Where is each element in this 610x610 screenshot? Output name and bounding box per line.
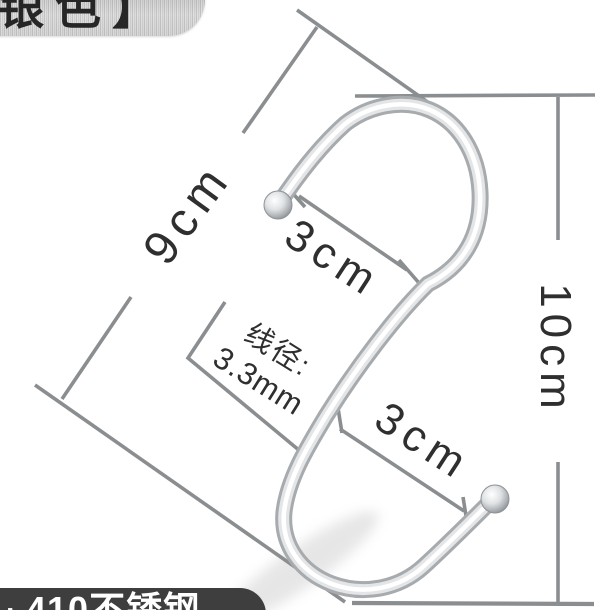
material-tag-bullet: · [6,594,17,610]
product-image-canvas: 9cm 3cm 3cm 10cm 线径: 3.3mm 银色】 ·410不锈钢 [0,0,610,610]
dimension-line-9cm-upper [243,27,317,133]
extension-line-top-horizontal [355,95,595,96]
material-tag-text: 410不锈钢 [26,589,200,610]
s-hook-dimension-drawing [0,0,610,610]
extension-line-bottom-horizontal [352,603,594,604]
color-tag-label: 银色】 [0,0,169,31]
dimension-label-overall-height: 10cm [533,283,577,415]
hook-ball-bottom [481,485,509,513]
hook-ball-top [264,191,292,219]
wire-outline [278,104,492,589]
wire-highlight [278,104,492,589]
tick-3cm-top-right [399,260,419,283]
material-tag-label: ·410不锈钢 [6,592,200,610]
wire-mid-tone [278,104,492,589]
dimension-line-9cm-lower [62,297,131,399]
